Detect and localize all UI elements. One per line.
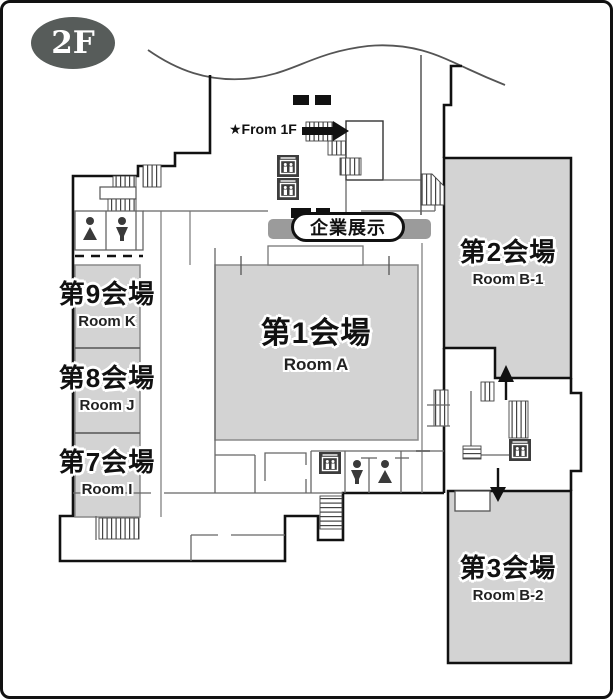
restroom-female-icon (83, 217, 97, 240)
elevator-icon (277, 155, 299, 177)
stairs-hatch (434, 390, 448, 426)
room-1-name-en: Room A (216, 356, 416, 374)
room-8-name-en: Room J (33, 398, 181, 414)
stairs-hatch (340, 158, 361, 175)
stairs-hatch (113, 176, 136, 187)
room-2-label: 第2会場 Room B-1 (445, 239, 571, 288)
elevator-icon (509, 439, 531, 461)
exhibition-label-text: 企業展示 (310, 214, 386, 240)
room-7-label: 第7会場 Room I (33, 449, 181, 498)
room-7-name-en: Room I (33, 482, 181, 498)
stairs-hatch (108, 199, 136, 211)
from-1f-note: ★From 1F (229, 121, 297, 138)
pillar (315, 95, 331, 105)
pillar (293, 95, 309, 105)
room-7-name-jp: 第7会場 (33, 449, 181, 476)
outer-wall-top-right (444, 66, 462, 158)
floor-plan-2f: 2F ★From 1F 企業展示 第1会場 Room A 第2会場 Room B… (0, 0, 613, 699)
room-3-notch (455, 491, 490, 511)
room-9-name-jp: 第9会場 (33, 281, 181, 308)
room-9-label: 第9会場 Room K (33, 281, 181, 330)
elevator-icon (277, 178, 299, 200)
room-8-label: 第8会場 Room J (33, 365, 181, 414)
restroom-box (75, 211, 143, 250)
partition (265, 453, 306, 481)
room-1-label: 第1会場 Room A (216, 318, 416, 373)
room-2-name-en: Room B-1 (445, 272, 571, 288)
room-2-name-jp: 第2会場 (445, 239, 571, 266)
stairs-hatch (481, 382, 494, 401)
restroom-female-icon (378, 460, 392, 483)
exhibition-label: 企業展示 (291, 212, 405, 242)
stairs-hatch (509, 401, 528, 438)
restroom-male-icon (351, 460, 363, 484)
stairs-hatch (320, 496, 342, 529)
stairs-hatch (99, 518, 139, 539)
stairs-hatch (328, 141, 346, 155)
restroom-male-icon (116, 217, 128, 241)
room-1-stage (268, 246, 363, 265)
room-9-name-en: Room K (33, 314, 181, 330)
floor-badge-text: 2F (51, 25, 95, 61)
room-3-name-jp: 第3会場 (445, 555, 571, 582)
outer-wall-right-bump (571, 378, 581, 491)
room-8-name-jp: 第8会場 (33, 365, 181, 392)
escalator-hatch (421, 174, 444, 205)
stairs-hatch (143, 165, 161, 187)
room-3-label: 第3会場 Room B-2 (445, 555, 571, 604)
room-1-name-jp: 第1会場 (216, 318, 416, 350)
stair-landing (100, 187, 136, 199)
stairs-hatch (463, 446, 481, 459)
elevator-icon (319, 452, 341, 474)
floor-badge: 2F (31, 17, 115, 69)
room-3-name-en: Room B-2 (445, 588, 571, 604)
